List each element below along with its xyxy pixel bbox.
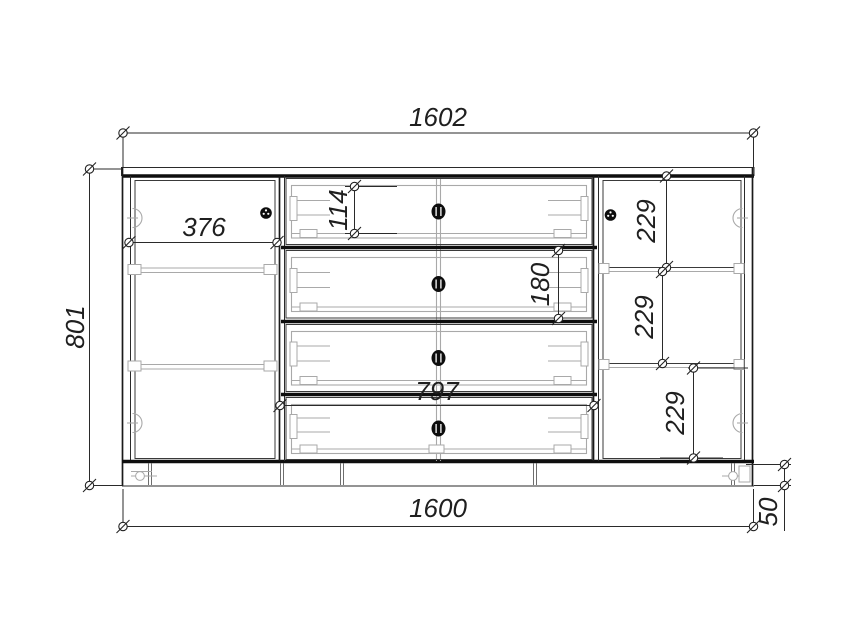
dim-label-overall-width: 1602 xyxy=(409,102,467,132)
drawer-4-knob xyxy=(432,421,446,437)
dim-label-carcass-width: 1600 xyxy=(409,493,467,523)
drawing-canvas: 1602 801 376 114 xyxy=(0,0,856,642)
left-door-knob xyxy=(260,207,272,219)
dim-label-right-compartment-bottom: 229 xyxy=(660,391,690,435)
dim-label-drawer-opening-width: 797 xyxy=(415,376,460,406)
drawer-2-knob xyxy=(432,276,446,292)
dim-label-drawer-front-height: 180 xyxy=(525,262,555,306)
right-door-knob xyxy=(605,209,617,221)
dim-label-right-compartment-middle: 229 xyxy=(629,295,659,339)
dim-label-top-drawer-height: 114 xyxy=(323,189,353,230)
dim-label-plinth-height: 50 xyxy=(753,497,783,526)
dim-label-left-door-width: 376 xyxy=(182,212,226,242)
dim-label-right-compartment-top: 229 xyxy=(631,199,661,243)
drawer-3-knob xyxy=(432,350,446,366)
drawer-1-knob xyxy=(432,204,446,220)
dim-label-overall-height: 801 xyxy=(60,305,90,348)
